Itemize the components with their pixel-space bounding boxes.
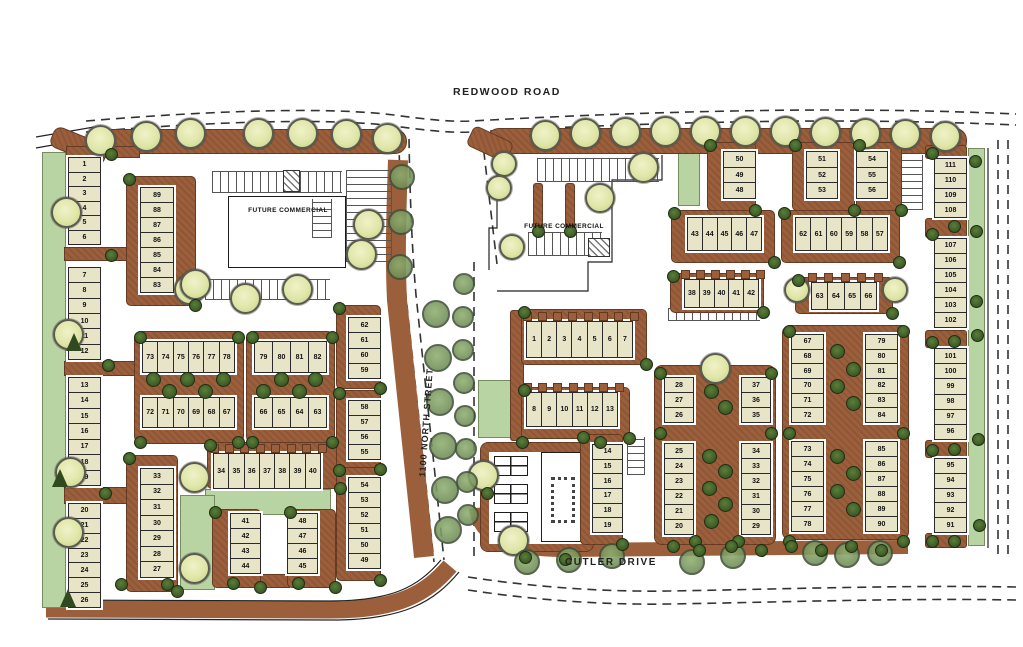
street-tree-icon <box>453 372 475 394</box>
shrub-icon <box>274 372 289 387</box>
shrub-icon <box>875 544 888 557</box>
street-tree-icon <box>456 471 478 493</box>
deciduous-tree-icon <box>610 117 641 148</box>
shrub-icon <box>948 335 961 348</box>
shrub-icon <box>969 155 982 168</box>
shrub-icon <box>254 581 267 594</box>
deciduous-tree-icon <box>499 234 525 260</box>
shrub-icon <box>848 204 861 217</box>
deciduous-tree-icon <box>287 118 318 149</box>
deciduous-tree-icon <box>491 151 517 177</box>
shrub-icon <box>180 372 195 387</box>
shrub-icon <box>704 384 719 399</box>
street-label-redwood-road: REDWOOD ROAD <box>453 86 561 98</box>
shrub-icon <box>246 436 259 449</box>
shrub-icon <box>693 544 706 557</box>
shrub-icon <box>725 540 738 553</box>
shrub-icon <box>830 379 845 394</box>
shrub-icon <box>232 331 245 344</box>
shrub-icon <box>105 148 118 161</box>
street-tree-icon <box>388 209 414 235</box>
deciduous-tree-icon <box>486 175 512 201</box>
shrub-icon <box>256 384 271 399</box>
shrub-icon <box>594 436 607 449</box>
shrub-icon <box>216 372 231 387</box>
deciduous-tree-icon <box>243 118 274 149</box>
shrub-icon <box>702 481 717 496</box>
shrub-icon <box>134 436 147 449</box>
shrub-icon <box>792 274 805 287</box>
deciduous-tree-icon <box>175 118 206 149</box>
shrub-icon <box>926 147 939 160</box>
shrub-icon <box>897 427 910 440</box>
shrub-icon <box>830 449 845 464</box>
future-commercial-label-east: FUTURE COMMERCIAL <box>520 223 608 230</box>
shrub-icon <box>830 484 845 499</box>
shrub-icon <box>704 139 717 152</box>
shrub-icon <box>893 256 906 269</box>
deciduous-tree-icon <box>585 183 615 213</box>
shrub-icon <box>755 544 768 557</box>
shrub-icon <box>227 577 240 590</box>
shrub-icon <box>765 367 778 380</box>
shrub-icon <box>926 444 939 457</box>
future-commercial-label-west: FUTURE COMMERCIAL <box>232 207 344 214</box>
deciduous-tree-icon <box>570 118 601 149</box>
shrub-icon <box>926 336 939 349</box>
shrub-icon <box>232 436 245 449</box>
shrub-icon <box>171 585 184 598</box>
deciduous-tree-icon <box>282 274 313 305</box>
shrub-icon <box>102 359 115 372</box>
shrub-icon <box>765 427 778 440</box>
shrub-icon <box>326 331 339 344</box>
shrub-icon <box>329 581 342 594</box>
deciduous-tree-icon <box>700 353 731 384</box>
deciduous-tree-icon <box>372 123 403 154</box>
shrub-icon <box>640 358 653 371</box>
deciduous-tree-icon <box>230 283 261 314</box>
shrub-icon <box>895 204 908 217</box>
shrub-icon <box>897 325 910 338</box>
shrub-icon <box>783 427 796 440</box>
shrub-icon <box>115 578 128 591</box>
deciduous-tree-icon <box>51 197 82 228</box>
shrub-icon <box>846 466 861 481</box>
shrub-icon <box>778 207 791 220</box>
shrub-icon <box>374 463 387 476</box>
shrub-icon <box>886 307 899 320</box>
shrub-icon <box>718 464 733 479</box>
shrub-icon <box>846 502 861 517</box>
shrub-icon <box>768 256 781 269</box>
shrub-icon <box>749 204 762 217</box>
shrub-icon <box>326 436 339 449</box>
deciduous-tree-icon <box>331 119 362 150</box>
deciduous-tree-icon <box>530 120 561 151</box>
shrub-icon <box>146 372 161 387</box>
shrub-icon <box>846 396 861 411</box>
shrub-icon <box>972 433 985 446</box>
shrub-icon <box>518 306 531 319</box>
shrub-icon <box>374 574 387 587</box>
shrub-icon <box>948 535 961 548</box>
shrub-icon <box>668 207 681 220</box>
shrub-icon <box>246 331 259 344</box>
shrub-icon <box>970 225 983 238</box>
shrub-icon <box>948 220 961 233</box>
shrub-icon <box>970 295 983 308</box>
shrub-icon <box>623 432 636 445</box>
shrub-icon <box>518 384 531 397</box>
shrub-icon <box>654 367 667 380</box>
street-tree-icon <box>454 405 476 427</box>
deciduous-tree-icon <box>179 553 210 584</box>
shrub-icon <box>973 519 986 532</box>
deciduous-tree-icon <box>179 462 210 493</box>
shrub-icon <box>204 439 217 452</box>
street-tree-icon <box>452 306 474 328</box>
shrub-icon <box>702 449 717 464</box>
shrub-icon <box>667 540 680 553</box>
shrub-icon <box>481 487 494 500</box>
shrub-icon <box>209 506 222 519</box>
shrub-icon <box>189 299 202 312</box>
shrub-icon <box>334 482 347 495</box>
shrub-icon <box>845 540 858 553</box>
deciduous-tree-icon <box>180 269 211 300</box>
street-tree-icon <box>453 273 475 295</box>
deciduous-tree-icon <box>131 121 162 152</box>
shrub-icon <box>105 249 118 262</box>
street-tree-icon <box>452 339 474 361</box>
shrub-icon <box>123 452 136 465</box>
shrub-icon <box>853 139 866 152</box>
shrub-icon <box>308 372 323 387</box>
shrub-icon <box>785 540 798 553</box>
shrub-icon <box>718 400 733 415</box>
shrub-icon <box>846 362 861 377</box>
shrub-icon <box>654 427 667 440</box>
shrub-icon <box>718 497 733 512</box>
shrub-icon <box>830 344 845 359</box>
shrub-icon <box>162 384 177 399</box>
shrub-icon <box>577 431 590 444</box>
street-tree-icon <box>387 254 413 280</box>
shrub-icon <box>123 173 136 186</box>
shrub-icon <box>292 384 307 399</box>
deciduous-tree-icon <box>353 209 384 240</box>
deciduous-tree-icon <box>890 119 921 150</box>
shrub-icon <box>667 270 680 283</box>
shrub-icon <box>789 139 802 152</box>
street-tree-icon <box>431 476 459 504</box>
shrub-icon <box>292 577 305 590</box>
shrub-icon <box>815 544 828 557</box>
shrub-icon <box>926 535 939 548</box>
conifer-icon <box>60 589 76 607</box>
shrub-icon <box>757 306 770 319</box>
street-label-cutler-drive: CUTLER DRIVE <box>565 557 657 568</box>
deciduous-tree-icon <box>650 116 681 147</box>
street-tree-icon <box>389 164 415 190</box>
street-tree-icon <box>457 504 479 526</box>
deciduous-tree-icon <box>346 239 377 270</box>
shrub-icon <box>374 382 387 395</box>
deciduous-tree-icon <box>882 277 908 303</box>
street-tree-icon <box>429 432 457 460</box>
shrub-icon <box>971 329 984 342</box>
shrub-icon <box>333 387 346 400</box>
deciduous-tree-icon <box>628 152 659 183</box>
shrub-icon <box>198 384 213 399</box>
shrub-icon <box>519 551 532 564</box>
shrub-icon <box>516 436 529 449</box>
shrub-icon <box>333 464 346 477</box>
deciduous-tree-icon <box>53 517 84 548</box>
shrub-icon <box>99 487 112 500</box>
shrub-icon <box>897 535 910 548</box>
shrub-icon <box>134 331 147 344</box>
shrub-icon <box>333 302 346 315</box>
shrub-icon <box>616 538 629 551</box>
shrub-icon <box>948 443 961 456</box>
deciduous-tree-icon <box>810 117 841 148</box>
deciduous-tree-icon <box>730 116 761 147</box>
street-tree-icon <box>455 438 477 460</box>
shrub-icon <box>284 506 297 519</box>
site-plan: 1234567891011121314151617181920212223242… <box>0 0 1023 647</box>
shrub-icon <box>783 325 796 338</box>
shrub-icon <box>926 228 939 241</box>
shrub-icon <box>704 514 719 529</box>
